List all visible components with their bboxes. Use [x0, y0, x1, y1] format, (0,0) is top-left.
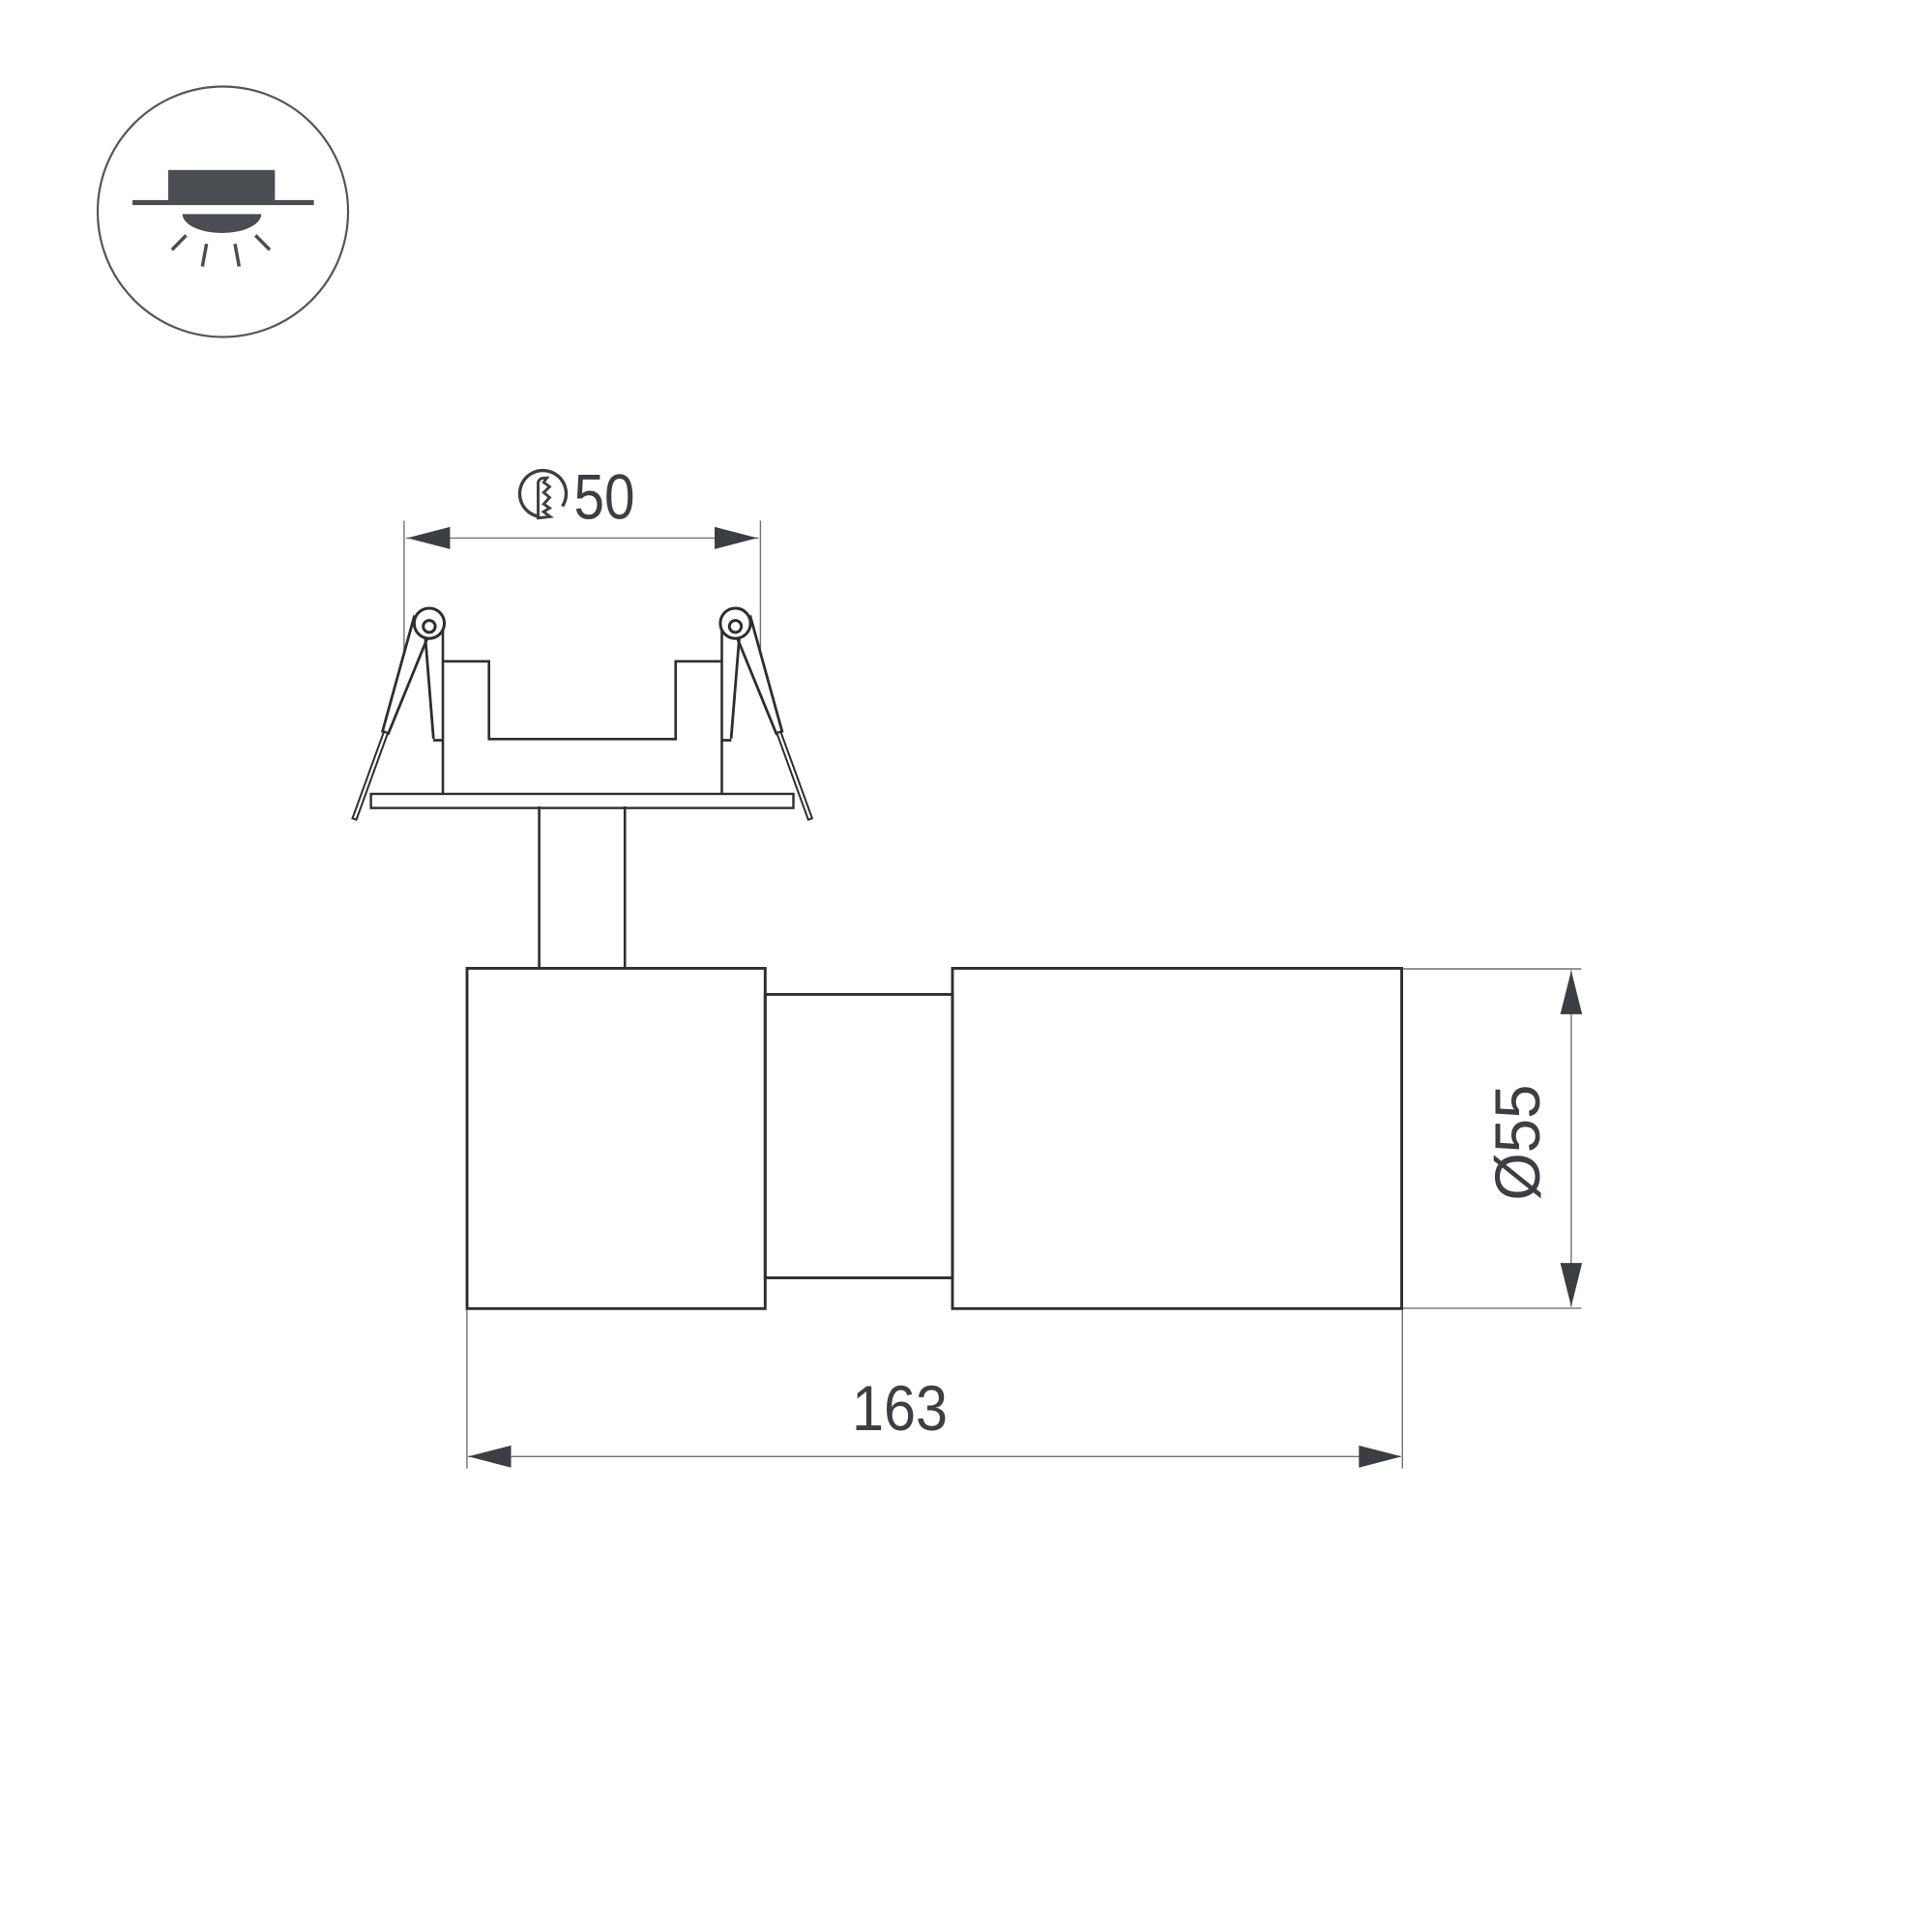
svg-text:50: 50 [574, 461, 635, 533]
svg-text:163: 163 [852, 1372, 948, 1444]
svg-text:Ø55: Ø55 [1481, 1085, 1553, 1201]
